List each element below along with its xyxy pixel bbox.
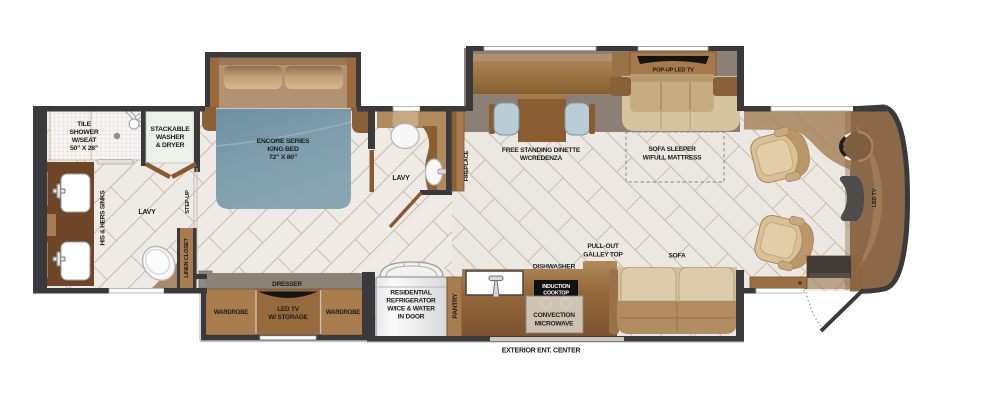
svg-text:HIS & HERS SINKS: HIS & HERS SINKS bbox=[100, 190, 107, 246]
svg-text:SOFA: SOFA bbox=[669, 253, 686, 260]
svg-text:W/ STORAGE: W/ STORAGE bbox=[268, 314, 308, 321]
svg-text:STACKABLE: STACKABLE bbox=[150, 126, 190, 133]
svg-text:72” X 80”: 72” X 80” bbox=[269, 154, 297, 161]
svg-text:GALLEY TOP: GALLEY TOP bbox=[583, 252, 623, 259]
svg-text:SOFA SLEEPER: SOFA SLEEPER bbox=[648, 146, 696, 153]
svg-text:W/FULL MATTRESS: W/FULL MATTRESS bbox=[643, 155, 702, 162]
svg-text:FREE STANDING DINETTE: FREE STANDING DINETTE bbox=[502, 147, 581, 154]
svg-text:LINEN CLOSET: LINEN CLOSET bbox=[184, 238, 190, 278]
svg-text:EXTERIOR ENT. CENTER: EXTERIOR ENT. CENTER bbox=[502, 348, 581, 355]
svg-text:ENCORE SERIES: ENCORE SERIES bbox=[257, 138, 310, 145]
svg-text:LAVY: LAVY bbox=[138, 209, 156, 216]
svg-text:WASHER: WASHER bbox=[156, 134, 185, 141]
svg-text:50” X 28”: 50” X 28” bbox=[70, 145, 98, 152]
svg-text:W/SEAT: W/SEAT bbox=[72, 137, 98, 144]
svg-text:REFRIGERATOR: REFRIGERATOR bbox=[386, 298, 436, 305]
svg-text:STEP-UP: STEP-UP bbox=[185, 190, 191, 214]
svg-text:INDUCTION: INDUCTION bbox=[542, 284, 570, 290]
svg-text:CONVECTION: CONVECTION bbox=[533, 312, 575, 319]
svg-text:W/CREDENZA: W/CREDENZA bbox=[520, 155, 563, 162]
svg-text:DISHWASHER: DISHWASHER bbox=[533, 264, 576, 271]
svg-text:W/ICE & WATER: W/ICE & WATER bbox=[387, 306, 435, 313]
svg-text:PULL-OUT: PULL-OUT bbox=[587, 243, 619, 250]
svg-text:WARDROBE: WARDROBE bbox=[326, 309, 360, 316]
svg-text:IN DOOR: IN DOOR bbox=[398, 314, 425, 321]
svg-text:POP-UP LED TV: POP-UP LED TV bbox=[652, 68, 693, 74]
svg-text:LAVY: LAVY bbox=[392, 175, 410, 182]
svg-text:FIREPLACE: FIREPLACE bbox=[464, 150, 470, 181]
svg-text:DRESSER: DRESSER bbox=[272, 281, 302, 288]
svg-text:MICROWAVE: MICROWAVE bbox=[535, 321, 575, 328]
svg-text:PANTRY: PANTRY bbox=[452, 293, 459, 319]
svg-text:& DRYER: & DRYER bbox=[156, 142, 185, 149]
svg-text:LED TV: LED TV bbox=[872, 188, 878, 207]
svg-text:RESIDENTIAL: RESIDENTIAL bbox=[390, 290, 431, 297]
svg-text:LED TV: LED TV bbox=[277, 306, 300, 313]
svg-text:TILE: TILE bbox=[77, 121, 91, 128]
svg-text:WARDROBE: WARDROBE bbox=[214, 309, 248, 316]
svg-text:KING BED: KING BED bbox=[267, 146, 299, 153]
svg-text:SHOWER: SHOWER bbox=[69, 129, 98, 136]
